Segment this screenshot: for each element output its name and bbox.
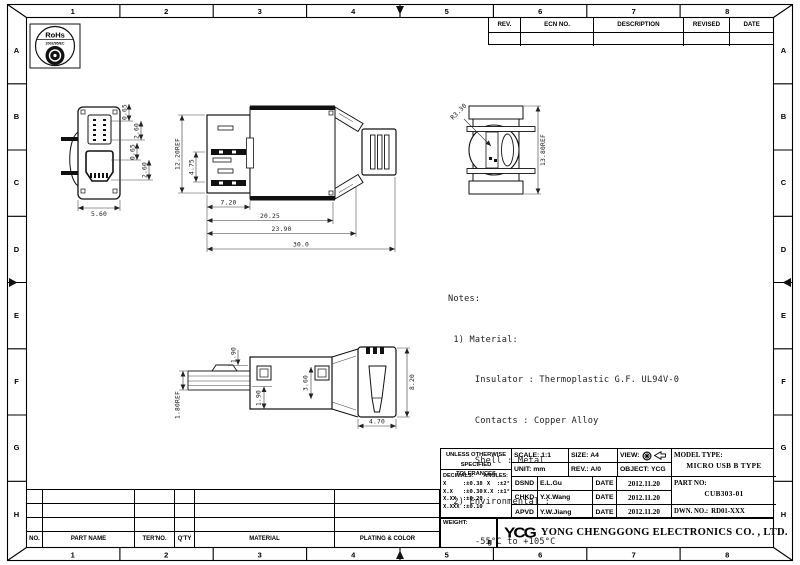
top-view: 12.20REF 4.75	[175, 106, 397, 253]
object-cell: OBJECT: YCG	[618, 463, 671, 476]
parts-cell-empty	[43, 490, 135, 504]
zone-row-label: E	[14, 311, 19, 320]
dwn-no-label: DWN. NO.:	[674, 508, 708, 515]
revision-header-revised: REVISED	[684, 18, 731, 32]
dim-top-latch-len: 23.90	[272, 226, 292, 233]
revision-header-rev: REV.	[489, 18, 521, 32]
parts-cell-empty	[195, 518, 335, 532]
dim-side-cap-h: 8.20	[409, 374, 416, 390]
parts-table: NO. PART NAME TER'NO. Q'TY MATERIAL PLAT…	[26, 489, 440, 548]
parts-cell-empty	[27, 518, 43, 532]
parts-cell-empty	[175, 504, 195, 518]
rev-value: A/0	[590, 466, 601, 473]
zone-row-label: F	[14, 377, 19, 386]
view-cell: VIEW:	[618, 449, 671, 462]
dim-front-span-top: 2.60	[134, 123, 141, 139]
zone-row-label: H	[781, 510, 786, 519]
dsnd-date-label: DATE	[593, 477, 617, 490]
parts-cell-empty	[335, 518, 440, 532]
unit-value: mm	[533, 466, 545, 473]
rohs-title: RoHs	[45, 31, 65, 40]
zone-col-label: 2	[164, 7, 168, 16]
view-projection-circle-icon	[642, 451, 652, 461]
revision-header-date: DATE	[730, 18, 773, 32]
parts-cell-empty	[175, 490, 195, 504]
note-line: Insulator : Thermoplastic G.F. UL94V-0	[448, 374, 706, 388]
parts-cell-empty	[27, 490, 43, 504]
revision-header-row: REV. ECN NO. DESCRIPTION REVISED DATE	[489, 18, 773, 33]
zone-col-label: 6	[538, 7, 542, 16]
tolerance-ang: X :±2°	[487, 481, 510, 489]
rear-view: R3.30 13.80REF	[449, 102, 547, 194]
dim-side-cap-w: 4.70	[369, 419, 385, 426]
parts-cell-empty	[135, 490, 175, 504]
dim-top-plug-len: 7.20	[221, 200, 237, 207]
chkd-name: Y.X.Wang	[538, 491, 593, 504]
tolerance-row: X.XX :±0.20	[443, 496, 510, 504]
tolerance-header: UNLESS OTHERWISE SPECIFIED TOLERANCES	[441, 449, 511, 470]
zone-row-label: B	[14, 112, 20, 121]
scale-label: SCALE:	[514, 452, 539, 459]
revision-header-ecn: ECN NO.	[521, 18, 594, 32]
apvd-date-label: DATE	[593, 505, 617, 519]
parts-cell-empty	[335, 504, 440, 518]
zone-col-label: 2	[164, 551, 168, 560]
parts-header-no: NO.	[27, 532, 43, 546]
dim-side-inner-h: 3.60	[303, 375, 310, 391]
scale-row: SCALE: 1:1 SIZE: A4 VIEW:	[512, 449, 671, 463]
zone-col-label: 4	[351, 7, 356, 16]
center-mark-top	[396, 6, 404, 15]
revision-header-description: DESCRIPTION	[594, 18, 683, 32]
dsnd-date: 2012.11.20	[617, 477, 671, 490]
parts-cell-empty	[195, 504, 335, 518]
tolerance-dec: X.XX :±0.20	[443, 496, 483, 504]
zone-row-label: E	[781, 311, 786, 320]
model-type-section: MODEL TYPE: MICRO USB B TYPE	[672, 449, 776, 477]
center-mark-right	[783, 278, 792, 287]
parts-header-plating-color: PLATING & COLOR	[335, 532, 440, 546]
center-mark-bottom	[396, 551, 404, 560]
tolerance-row: X.XXX :±0.10	[443, 504, 510, 512]
revision-empty-row	[489, 33, 773, 47]
drawing-sheet: 1 2 3 4 5 6 7 8 1 2 3 4 5 6 7 8 A B C D …	[0, 0, 800, 565]
side-view: 1.90 3.60 1.90 8.20 4.70	[175, 347, 417, 429]
zone-row-label: H	[14, 510, 19, 519]
dim-front-pitch-top: 0.65	[122, 104, 129, 120]
tolerance-row: X.X :±0.30 X.X :±1°	[443, 489, 510, 497]
zone-col-label: 1	[71, 7, 75, 16]
object-label: OBJECT:	[620, 466, 649, 473]
rev-cell: REV.: A/0	[569, 463, 618, 476]
part-no-value: CUB303-01	[672, 487, 776, 498]
dwn-no-value: RD01-XXX	[711, 508, 745, 515]
weight-label: WEIGHT:	[443, 520, 467, 526]
revision-cell-empty	[489, 33, 521, 47]
zone-col-label: 3	[258, 551, 262, 560]
parts-header-ter-no: TER'NO.	[135, 532, 175, 546]
part-no-section: PART NO: CUB303-01	[672, 477, 776, 505]
decimals-label: DECIMALS:	[443, 473, 474, 479]
dim-front-span-bot: 2.60	[142, 162, 149, 178]
revision-cell-empty	[594, 33, 683, 47]
unit-label: UNIT:	[514, 466, 531, 473]
note-line: 1) Material:	[448, 334, 706, 348]
view-projection-cone-icon	[654, 451, 666, 460]
zone-col-label: 8	[725, 7, 729, 16]
model-type-label: MODEL TYPE:	[672, 449, 776, 459]
parts-cell-empty	[335, 490, 440, 504]
dim-side-wire-h: 1.80REF	[175, 391, 182, 419]
parts-cell-empty	[135, 504, 175, 518]
zone-row-label: G	[14, 443, 20, 452]
parts-header-part-name: PART NAME	[43, 532, 135, 546]
view-icons	[642, 451, 666, 461]
front-view: 0.65 2.60 0.65 2.60 5.60	[61, 104, 153, 218]
revision-table: REV. ECN NO. DESCRIPTION REVISED DATE	[488, 17, 774, 45]
weight-box: WEIGHT: g	[440, 518, 497, 548]
parts-cell-empty	[27, 504, 43, 518]
zone-row-label: D	[14, 245, 20, 254]
parts-cell-empty	[135, 518, 175, 532]
unit-row: UNIT: mm REV.: A/0 OBJECT: YCG	[512, 463, 671, 477]
size-label: SIZE:	[571, 452, 588, 459]
zone-col-label: 8	[725, 551, 729, 560]
zone-row-label: F	[781, 377, 786, 386]
dsnd-row: DSND E.L.Gu DATE 2012.11.20	[512, 477, 671, 491]
title-block: UNLESS OTHERWISE SPECIFIED TOLERANCES DE…	[440, 448, 774, 518]
revision-cell-empty	[730, 33, 773, 47]
dim-front-width: 5.60	[91, 211, 107, 218]
zone-row-label: A	[781, 46, 787, 55]
parts-header-material: MATERIAL	[195, 532, 335, 546]
tolerance-rows: X :±0.38 X :±2° X.X :±0.30 X.X :±1° X.XX…	[441, 479, 511, 511]
dim-side-boot-h: 1.90	[231, 347, 238, 363]
parts-cell-empty	[175, 518, 195, 532]
chkd-date: 2012.11.20	[617, 491, 671, 504]
zone-col-label: 3	[258, 7, 262, 16]
dim-rear-height: 13.80REF	[540, 134, 547, 166]
rohs-directive: 2002/95/EC	[46, 42, 65, 46]
chkd-role: CHKD	[512, 491, 538, 504]
zone-row-label: C	[781, 178, 787, 187]
angles-label: ANGLES:	[483, 473, 508, 479]
rev-label: REV.:	[571, 466, 589, 473]
chkd-date-label: DATE	[593, 491, 617, 504]
zone-row-label: A	[14, 46, 20, 55]
apvd-role: APVD	[512, 505, 538, 519]
size-value: A4	[590, 452, 599, 459]
zone-col-label: 4	[351, 551, 356, 560]
apvd-date: 2012.11.20	[617, 505, 671, 519]
company-bar: YCG YONG CHENGGONG ELECTRONICS CO. , LTD…	[497, 518, 774, 548]
tolerance-box: UNLESS OTHERWISE SPECIFIED TOLERANCES DE…	[441, 449, 512, 517]
dim-front-pitch-bot: 0.65	[130, 144, 137, 160]
zone-row-label: D	[781, 245, 787, 254]
parts-header-qty: Q'TY	[175, 532, 195, 546]
dim-top-total-len: 30.0	[293, 242, 309, 249]
dsnd-name: E.L.Gu	[538, 477, 593, 490]
dim-top-shell-len: 20.25	[260, 213, 280, 220]
parts-cell-empty	[195, 490, 335, 504]
size-cell: SIZE: A4	[569, 449, 618, 462]
dim-top-inner-height: 4.75	[189, 159, 196, 175]
title-block-right: MODEL TYPE: MICRO USB B TYPE PART NO: CU…	[671, 449, 776, 517]
zone-col-label: 1	[71, 551, 75, 560]
dsnd-role: DSND	[512, 477, 538, 490]
zone-row-label: B	[781, 112, 787, 121]
apvd-name: Y.W.Jiang	[538, 505, 593, 519]
dim-rear-radius: R3.30	[449, 102, 468, 121]
scale-value: 1:1	[541, 452, 551, 459]
company-name: YONG CHENGGONG ELECTRONICS CO. , LTD.	[541, 527, 788, 538]
revision-cell-empty	[684, 33, 731, 47]
model-type-value: MICRO USB B TYPE	[672, 459, 776, 470]
tolerance-dec: X :±0.38	[443, 481, 483, 489]
dim-top-height: 12.20REF	[175, 138, 182, 170]
zone-row-label: G	[781, 443, 787, 452]
weight-unit: g	[487, 537, 492, 546]
parts-cell-empty	[43, 518, 135, 532]
tolerance-header-line1: UNLESS OTHERWISE	[441, 451, 511, 461]
tolerance-ang: X.X :±1°	[484, 489, 511, 497]
object-value: YCG	[651, 466, 666, 473]
unit-cell: UNIT: mm	[512, 463, 569, 476]
apvd-row: APVD Y.W.Jiang DATE 2012.11.20	[512, 505, 671, 519]
zone-col-label: 7	[632, 7, 636, 16]
zone-row-label: C	[14, 178, 20, 187]
parts-cell-empty	[43, 504, 135, 518]
tolerance-dec: X.XXX :±0.10	[443, 504, 483, 512]
part-no-label: PART NO:	[672, 477, 776, 487]
scale-cell: SCALE: 1:1	[512, 449, 569, 462]
revision-cell-empty	[521, 33, 594, 47]
tolerance-row: X :±0.38 X :±2°	[443, 481, 510, 489]
chkd-row: CHKD Y.X.Wang DATE 2012.11.20	[512, 491, 671, 505]
center-mark-left	[9, 278, 18, 287]
title-block-middle: SCALE: 1:1 SIZE: A4 VIEW:	[512, 449, 671, 517]
note-line: Contacts : Copper Alloy	[448, 415, 706, 429]
note-line: Notes:	[448, 293, 706, 307]
ycg-logo: YCG	[504, 524, 535, 541]
rohs-logo: RoHs 2002/95/EC	[30, 24, 80, 68]
zone-col-label: 5	[445, 7, 449, 16]
tolerance-dec: X.X :±0.30	[443, 489, 483, 497]
dwn-no-section: DWN. NO.: RD01-XXX	[672, 505, 776, 518]
dim-side-tail-h: 1.90	[256, 390, 263, 406]
view-label: VIEW:	[620, 452, 640, 459]
